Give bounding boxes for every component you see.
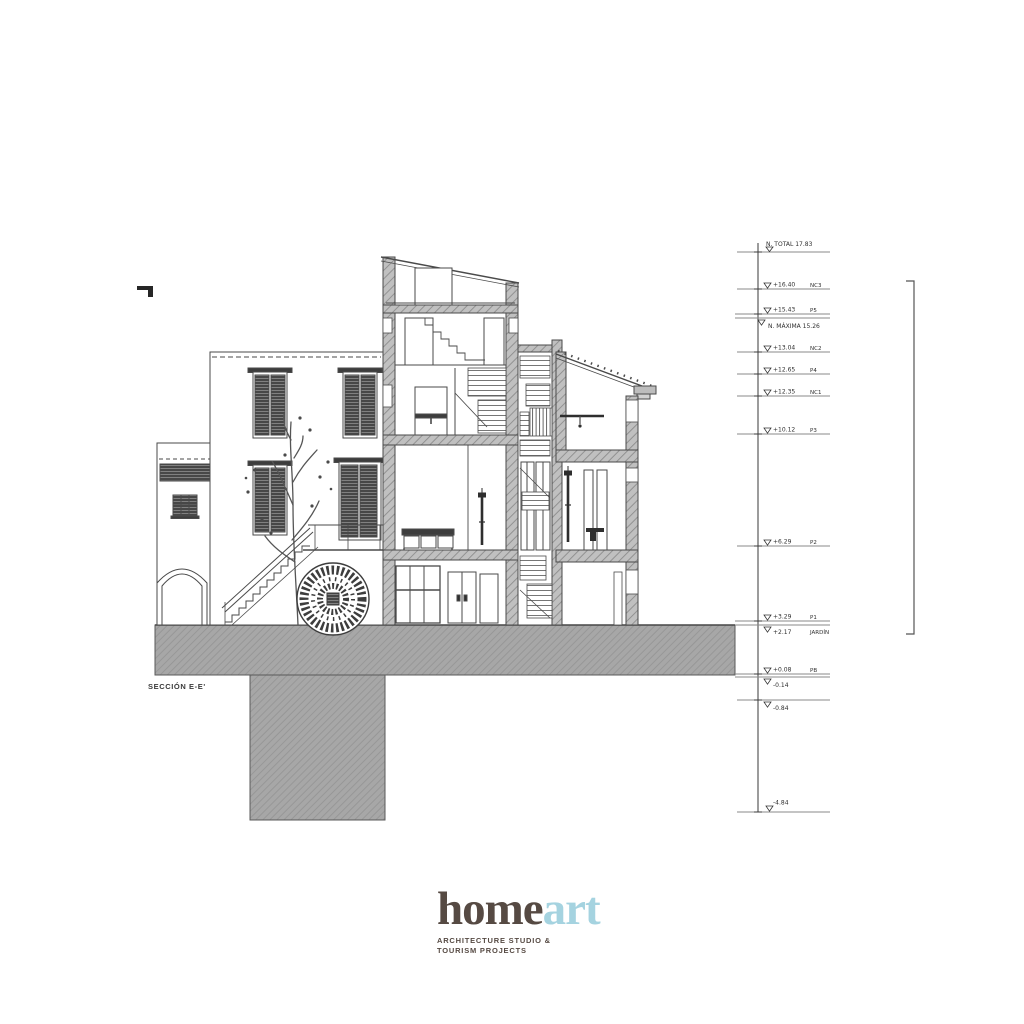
svg-text:+6.29: +6.29: [773, 539, 792, 546]
sofa: [402, 529, 454, 552]
window-shuttered: [338, 368, 382, 438]
logo-subtitle-line2: TOURISM PROJECTS: [437, 946, 600, 956]
section-drawing: N. TOTAL 17.83 +16.40 NC3 +15.43 P5 N. M…: [0, 0, 1024, 1024]
level-p1: +3.29 P1: [764, 614, 817, 622]
svg-text:P5: P5: [810, 308, 817, 314]
svg-text:P1: P1: [810, 615, 817, 621]
middle-tower: [381, 257, 519, 625]
level-pb: +0.08 PB: [764, 667, 817, 675]
glazed-partition: [396, 566, 440, 623]
svg-text:+13.04: +13.04: [773, 345, 795, 352]
svg-text:+16.40: +16.40: [773, 282, 795, 289]
level-nc3: +16.40 NC3: [764, 282, 822, 290]
window-shuttered: [248, 461, 292, 535]
studio-logo: homeart ARCHITECTURE STUDIO & TOURISM PR…: [437, 886, 600, 956]
rosette-window: [297, 563, 369, 635]
svg-text:+2.17: +2.17: [773, 629, 792, 636]
stair-shaft: [518, 340, 562, 625]
svg-text:NC2: NC2: [810, 346, 821, 352]
level-maxima: N. MÁXIMA 15.26: [758, 320, 820, 330]
svg-text:N. MÁXIMA 15.26: N. MÁXIMA 15.26: [768, 323, 820, 330]
svg-text:P3: P3: [810, 428, 817, 434]
svg-text:+15.43: +15.43: [773, 307, 795, 314]
svg-text:-0.84: -0.84: [773, 705, 789, 712]
level-p4: +12.65 P4: [764, 367, 817, 375]
level-total: N. TOTAL 17.83: [766, 241, 813, 252]
level-minus484: -4.84: [766, 800, 789, 812]
ground-section: [155, 625, 735, 820]
svg-text:NC3: NC3: [810, 283, 822, 289]
svg-text:P4: P4: [810, 368, 817, 374]
right-extent-line: [906, 281, 914, 634]
logo-word-home: home: [437, 883, 543, 935]
logo-word-art: art: [543, 883, 600, 935]
level-p2: +6.29 P2: [764, 539, 817, 547]
level-minus014: -0.14: [764, 679, 789, 689]
section-title: SECCIÓN E-E': [148, 682, 206, 691]
left-boundary-wall: [157, 443, 213, 625]
svg-text:-0.14: -0.14: [773, 682, 789, 689]
double-door: [448, 572, 476, 623]
shower-column: [479, 488, 486, 545]
level-markers: N. TOTAL 17.83 +16.40 NC3 +15.43 P5 N. M…: [735, 241, 830, 812]
svg-text:+3.29: +3.29: [773, 614, 792, 621]
level-p3: +10.12 P3: [764, 427, 817, 435]
logo-subtitle-line1: ARCHITECTURE STUDIO &: [437, 936, 600, 946]
svg-text:+12.35: +12.35: [773, 389, 795, 396]
svg-text:NC1: NC1: [810, 390, 821, 396]
level-nc2: +13.04 NC2: [764, 345, 821, 353]
svg-text:P2: P2: [810, 540, 817, 546]
level-nc1: +12.35 NC1: [764, 389, 821, 397]
shower-column: [565, 466, 572, 542]
logo-wordmark: homeart: [437, 886, 600, 933]
level-jardin: +2.17 JARDÍN: [764, 627, 829, 636]
svg-text:+12.65: +12.65: [773, 367, 795, 374]
svg-text:+10.12: +10.12: [773, 427, 795, 434]
window-shuttered-open: [334, 458, 384, 540]
svg-text:JARDÍN: JARDÍN: [809, 629, 829, 636]
svg-text:+0.08: +0.08: [773, 667, 792, 674]
level-p5: +15.43 P5: [764, 307, 817, 315]
svg-text:PB: PB: [810, 668, 817, 674]
right-wing: [556, 351, 656, 625]
wall-end-mark: [137, 286, 153, 297]
svg-text:-4.84: -4.84: [773, 800, 789, 807]
single-door: [480, 574, 498, 623]
architectural-sheet: N. TOTAL 17.83 +16.40 NC3 +15.43 P5 N. M…: [0, 0, 1024, 1024]
level-minus084: -0.84: [764, 702, 789, 712]
logo-subtitle: ARCHITECTURE STUDIO & TOURISM PROJECTS: [437, 936, 600, 956]
